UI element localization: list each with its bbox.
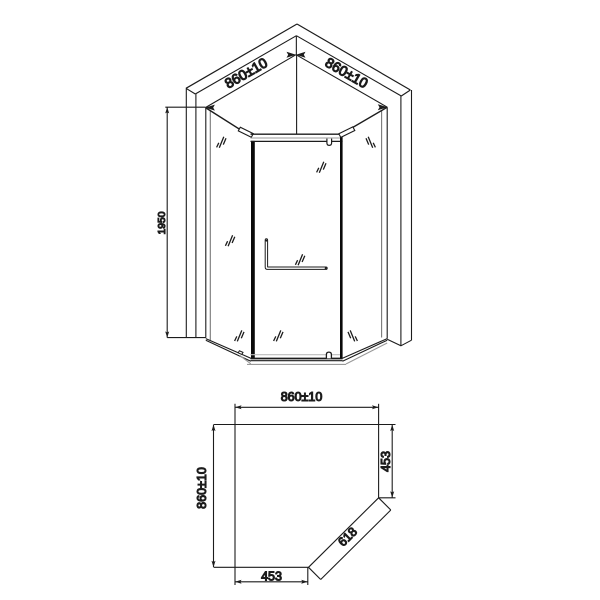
svg-text:860±10: 860±10 <box>281 390 323 404</box>
svg-text:453: 453 <box>261 569 282 583</box>
svg-text:860±10: 860±10 <box>195 467 209 509</box>
svg-text:1950: 1950 <box>157 211 168 234</box>
svg-text:453: 453 <box>379 451 393 472</box>
